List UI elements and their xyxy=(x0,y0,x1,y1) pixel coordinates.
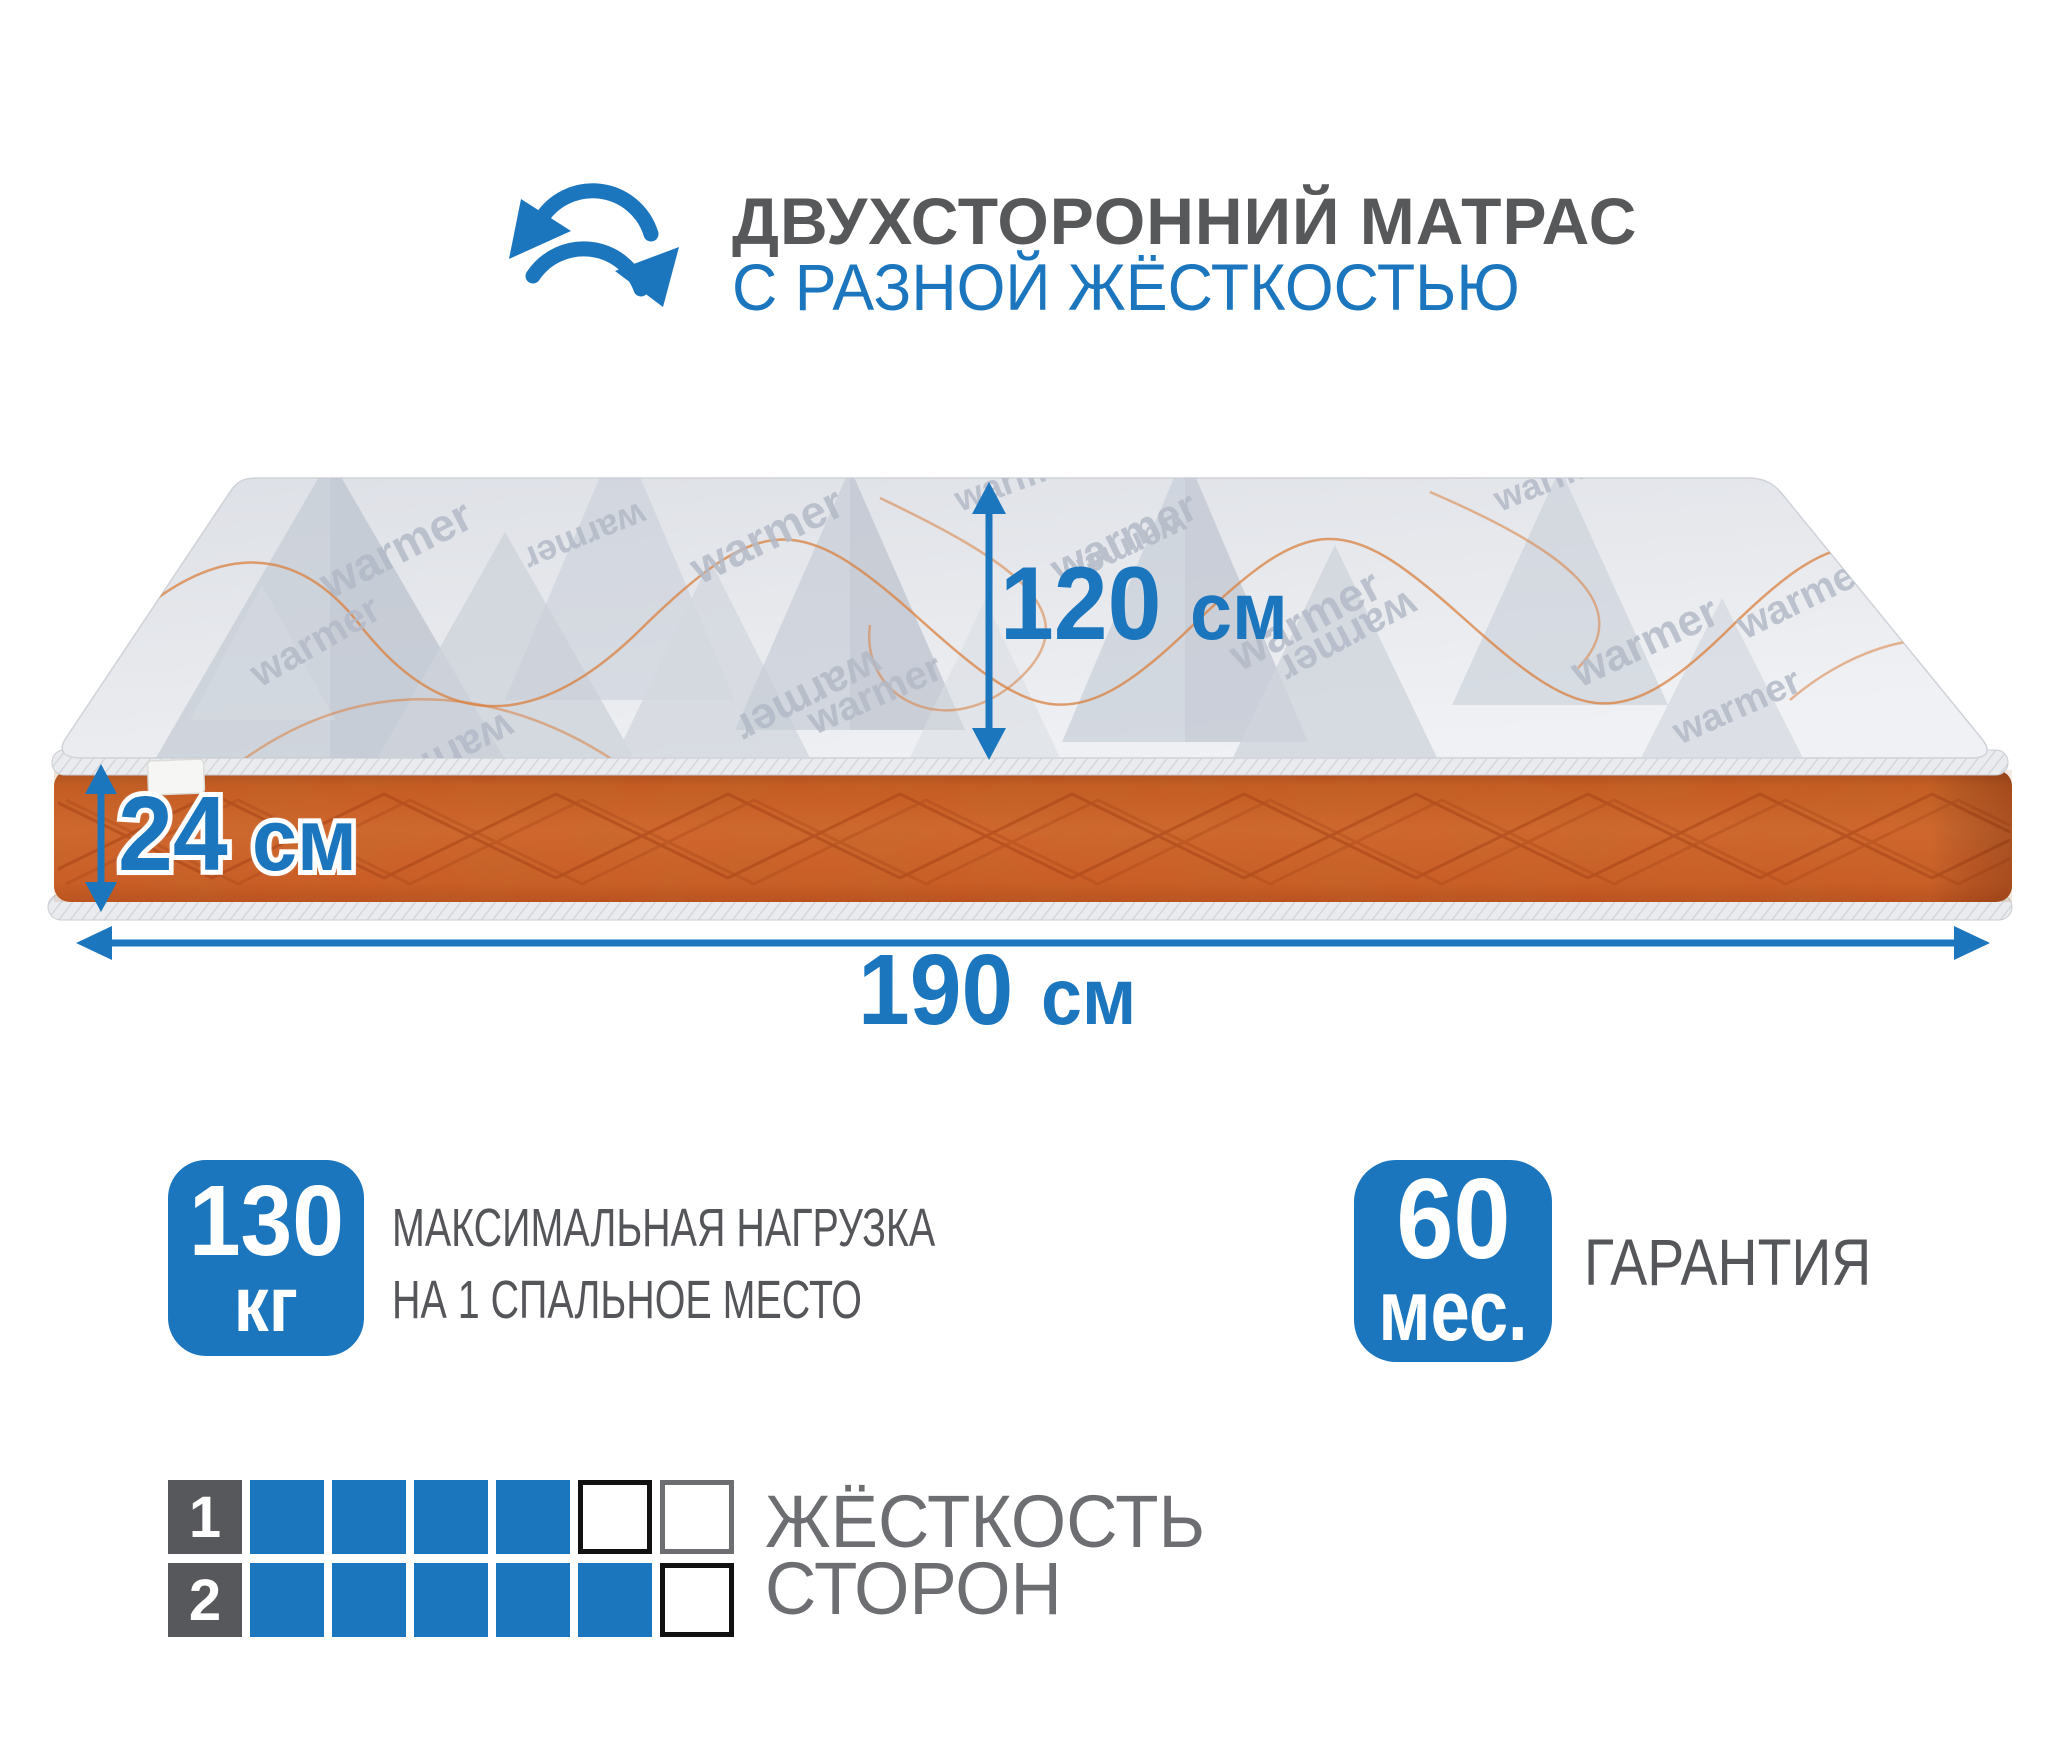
firmness-row-number: 2 xyxy=(168,1563,242,1637)
firmness-scale: 1 2 xyxy=(168,1480,734,1637)
max-load-value: 130 xyxy=(188,1175,343,1267)
max-load-label-line1: МАКСИМАЛЬНАЯ НАГРУЗКА xyxy=(392,1192,935,1264)
length-unit: см xyxy=(1041,957,1136,1037)
length-value: 190 xyxy=(858,940,1013,1040)
firmness-cell-filled xyxy=(332,1563,406,1637)
page-title: ДВУХСТОРОННИЙ МАТРАС xyxy=(732,188,1637,254)
firmness-cell-filled xyxy=(414,1480,488,1554)
firmness-cell-empty-black xyxy=(660,1563,734,1637)
firmness-cell-empty-gray xyxy=(660,1480,734,1554)
page-subtitle: С РАЗНОЙ ЖЁСТКОСТЬЮ xyxy=(732,254,1520,320)
warranty-unit: мес. xyxy=(1378,1271,1527,1353)
firmness-cell-filled xyxy=(496,1563,570,1637)
firmness-row-2: 2 xyxy=(168,1563,734,1637)
firmness-cell-filled xyxy=(414,1563,488,1637)
firmness-row-1: 1 xyxy=(168,1480,734,1554)
firmness-cell-filled xyxy=(250,1563,324,1637)
height-dimension-label: 24 см xyxy=(118,781,366,887)
firmness-label-line2: СТОРОН xyxy=(765,1552,1062,1626)
firmness-cell-filled xyxy=(250,1480,324,1554)
rotate-arrows-icon xyxy=(509,191,679,307)
firmness-row-number: 1 xyxy=(168,1480,242,1554)
max-load-unit: кг xyxy=(234,1267,298,1341)
firmness-cell-filled xyxy=(332,1480,406,1554)
firmness-cell-filled xyxy=(578,1563,652,1637)
height-unit: см xyxy=(252,796,357,884)
height-value: 24 xyxy=(118,781,228,887)
warranty-label: ГАРАНТИЯ xyxy=(1584,1229,1871,1295)
depth-value: 120 xyxy=(1000,552,1161,656)
warranty-value: 60 xyxy=(1396,1169,1510,1272)
length-dimension-label: 190 см xyxy=(858,940,1145,1040)
max-load-label-line2: НА 1 СПАЛЬНОЕ МЕСТО xyxy=(392,1264,935,1336)
mattress-infographic: warmer warmer warmer warmer warmer warme… xyxy=(0,0,2048,1757)
depth-unit: см xyxy=(1190,571,1288,653)
max-load-badge: 130 кг xyxy=(168,1160,364,1356)
max-load-label: МАКСИМАЛЬНАЯ НАГРУЗКА НА 1 СПАЛЬНОЕ МЕСТ… xyxy=(392,1192,935,1336)
firmness-cell-empty-black xyxy=(578,1480,652,1554)
warranty-badge: 60 мес. xyxy=(1354,1160,1552,1362)
firmness-cell-filled xyxy=(496,1480,570,1554)
depth-dimension-label: 120 см xyxy=(1000,552,1296,656)
